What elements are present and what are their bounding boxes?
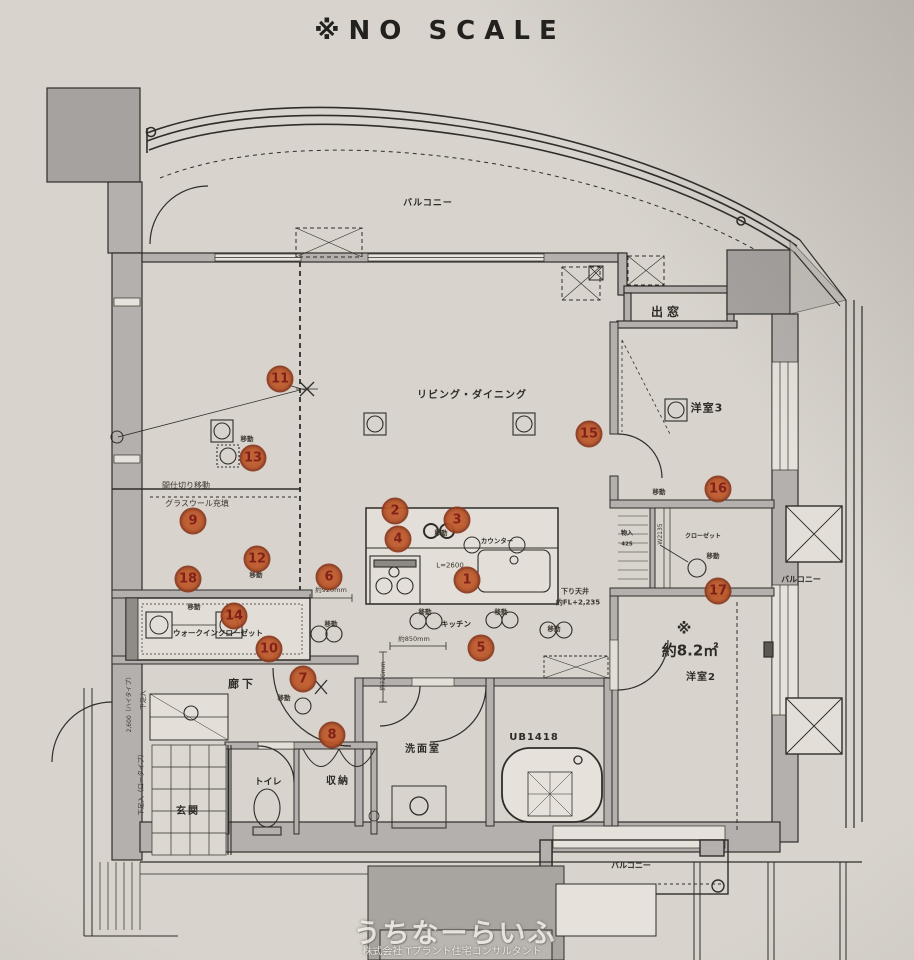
room-label-cabinet: 物入 xyxy=(621,531,633,537)
number-marker-2: 2 xyxy=(382,498,409,525)
move-label-1: 移動 xyxy=(241,436,254,443)
number-marker-8: 8 xyxy=(319,722,346,749)
room-label-western-room-2: 洋室2 xyxy=(686,673,716,683)
number-marker-11: 11 xyxy=(267,366,294,393)
move-label-11: 移動 xyxy=(653,489,666,496)
number-marker-16: 16 xyxy=(705,476,732,503)
room-label-walk-in-closet: ウォークインクローゼット xyxy=(173,629,263,637)
room-label-balcony-top: バルコニー xyxy=(403,200,453,209)
watermark-company: 株式会社 Tプラント住宅コンサルタント xyxy=(362,943,541,958)
move-label-10: 移動 xyxy=(707,553,720,560)
annotation-shoe-cabinet-low: 下足入（ロータイプ） xyxy=(138,751,145,816)
number-marker-17: 17 xyxy=(705,578,732,605)
annotation-dim-720: 約720mm xyxy=(381,661,387,690)
floorplan-photo: ※NO SCALE バルコニーリビング・ダイニング出窓洋室3バルコニー※約8.2… xyxy=(0,0,914,960)
move-label-8: 移動 xyxy=(495,609,508,616)
room-label-washroom: 洗面室 xyxy=(405,745,441,755)
number-marker-10: 10 xyxy=(256,636,283,663)
move-label-3: 移動 xyxy=(188,604,201,611)
number-marker-4: 4 xyxy=(385,526,412,553)
move-label-7: 移動 xyxy=(419,609,432,616)
room-label-living-dining: リビング・ダイニング xyxy=(417,391,527,401)
room-label-balcony-bottom: バルコニー xyxy=(611,862,651,870)
number-marker-5: 5 xyxy=(468,635,495,662)
number-marker-18: 18 xyxy=(175,566,202,593)
room-label-toilet: トイレ xyxy=(254,779,281,788)
room-label-area-mark: ※ xyxy=(677,622,692,637)
room-label-counter: カウンター xyxy=(481,538,514,545)
annotation-glasswool-note: グラスウール充填 xyxy=(165,500,229,508)
annotation-ceiling-note-1: 下り天井 xyxy=(561,589,589,596)
move-label-2: 移動 xyxy=(250,572,263,579)
room-label-area-size: 約8.2㎡ xyxy=(662,644,719,659)
number-marker-9: 9 xyxy=(180,508,207,535)
annotation-partition-note: 間仕切り移動 xyxy=(162,482,210,490)
annotation-ceiling-note-2: 約FL+2,235 xyxy=(556,600,600,607)
move-label-9: 移動 xyxy=(548,626,561,633)
move-label-5: 移動 xyxy=(325,621,338,628)
number-marker-3: 3 xyxy=(444,507,471,534)
room-label-balcony-right: バルコニー xyxy=(781,576,821,584)
room-label-entrance: 玄関 xyxy=(176,807,200,817)
annotation-shoe-cabinet-high-size: 2,600（ハイタイプ） xyxy=(127,674,133,733)
room-label-western-room-3: 洋室3 xyxy=(691,403,724,414)
move-label-4: 移動 xyxy=(278,695,291,702)
annotation-dim-850: 約850mm xyxy=(398,636,430,643)
number-marker-14: 14 xyxy=(221,603,248,630)
number-marker-15: 15 xyxy=(576,421,603,448)
number-marker-13: 13 xyxy=(240,445,267,472)
number-marker-1: 1 xyxy=(454,567,481,594)
number-marker-12: 12 xyxy=(244,546,271,573)
number-marker-7: 7 xyxy=(290,666,317,693)
annotation-shoe-cabinet-high: 下足入 xyxy=(140,690,147,710)
room-label-bay-window: 出窓 xyxy=(651,306,683,318)
number-marker-6: 6 xyxy=(316,564,343,591)
room-label-kitchen: キッチン xyxy=(441,620,471,628)
label-layer: バルコニーリビング・ダイニング出窓洋室3バルコニー※約8.2㎡洋室2廊下トイレ収… xyxy=(0,0,914,960)
annotation-closet-width: W2135 xyxy=(658,523,664,544)
room-label-storage: 収納 xyxy=(326,777,350,787)
room-label-hallway: 廊下 xyxy=(228,679,256,690)
room-label-cabinet-size: 425 xyxy=(621,542,632,548)
room-label-closet: クローゼット xyxy=(685,534,721,540)
move-label-6: 移動 xyxy=(435,530,448,537)
room-label-unit-bath: UB1418 xyxy=(509,733,559,743)
